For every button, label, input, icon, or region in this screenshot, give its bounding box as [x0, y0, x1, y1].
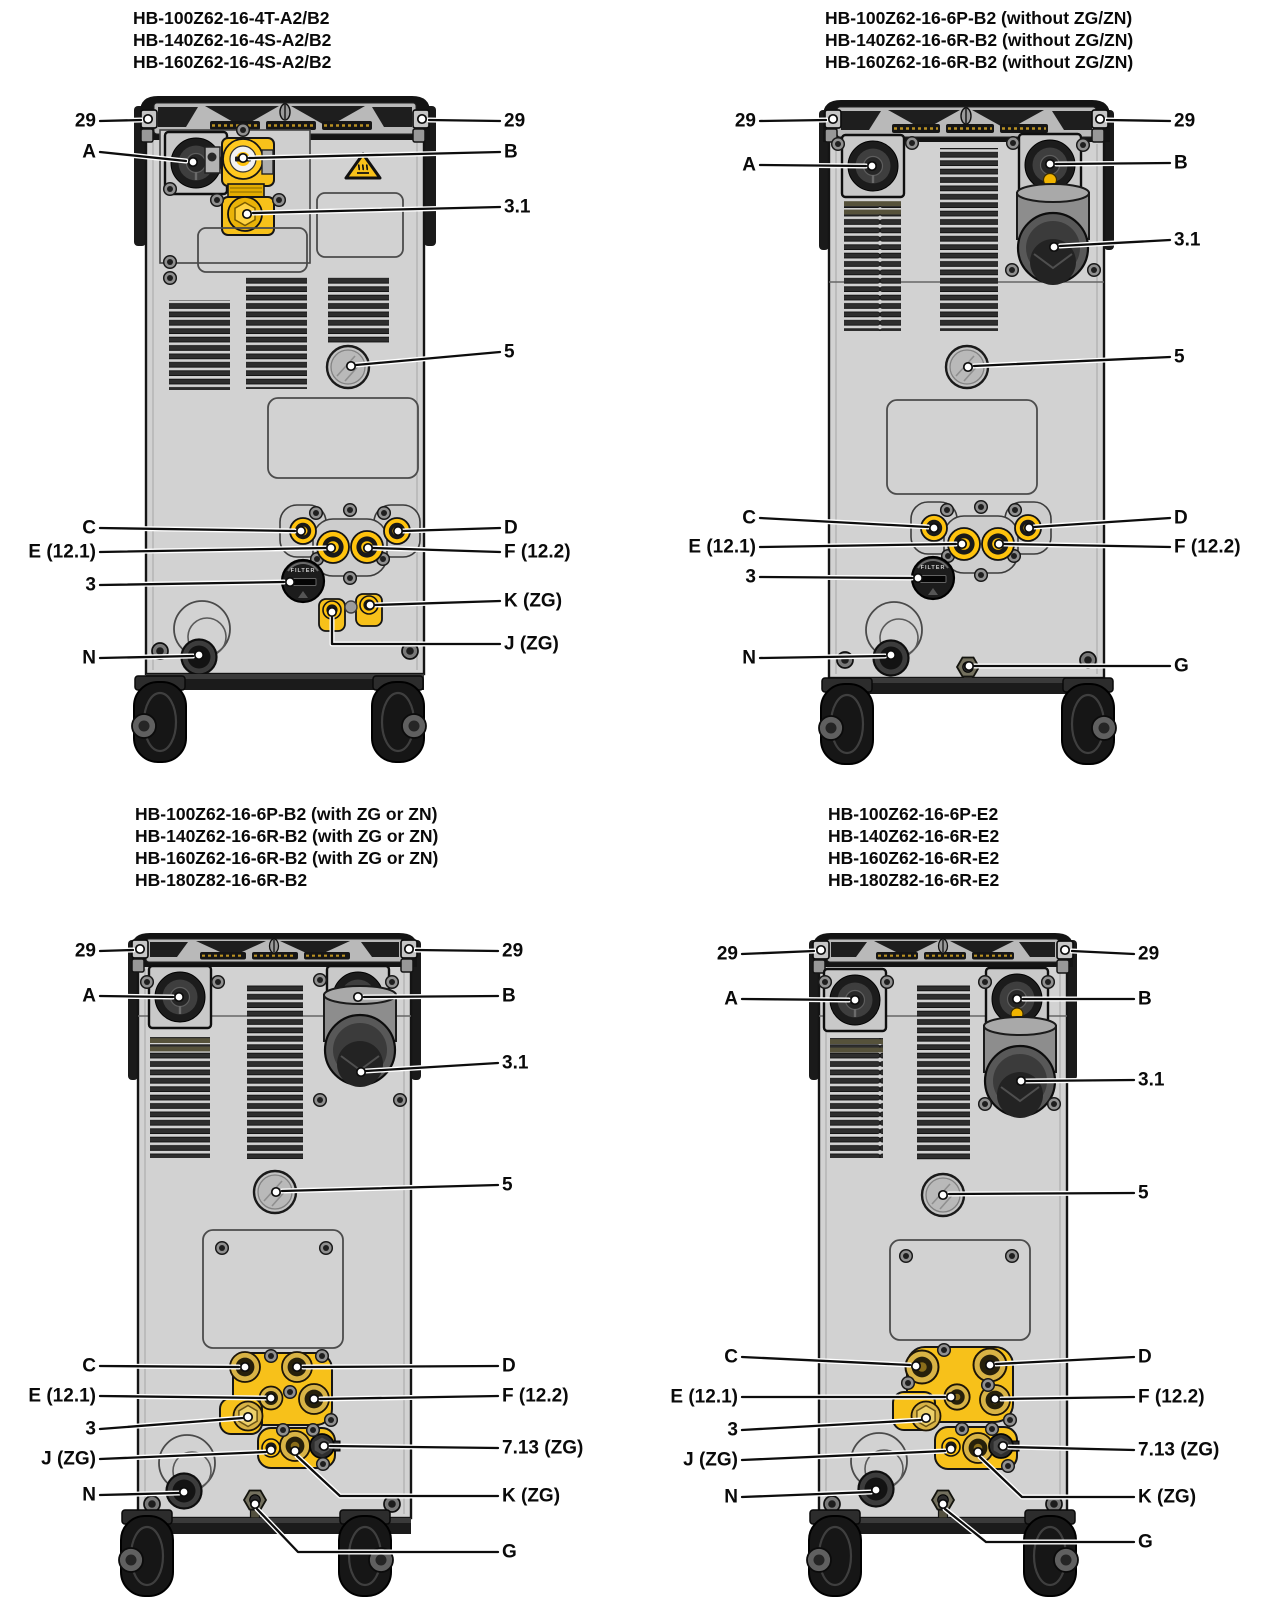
- filter-knob-label: FILTER: [921, 565, 946, 571]
- callout-label-g: G: [1174, 656, 1189, 677]
- callout-label-c: C: [82, 1356, 96, 1377]
- plug: [345, 601, 357, 613]
- screw: [900, 1250, 913, 1263]
- vent-grille-filter: [830, 1048, 883, 1053]
- callout-29-left: [100, 945, 144, 953]
- callout-label-e: E (12.1): [28, 1386, 96, 1407]
- screw: [982, 1379, 995, 1392]
- screw: [1002, 1460, 1015, 1473]
- screw: [141, 976, 154, 989]
- wheel-right: [1062, 678, 1116, 764]
- screw: [325, 1414, 338, 1427]
- wheel-right: [372, 676, 426, 762]
- screw: [1088, 264, 1101, 277]
- figure-panel-top-right: HB-100Z62-16-6P-B2 (without ZG/ZN) HB-14…: [640, 0, 1280, 800]
- machine-rear-view-6p-with-zg: HB-100Z62-16-6P-B2 (with ZG or ZN) HB-14…: [0, 800, 640, 1600]
- callout-label-b: B: [504, 142, 518, 163]
- callout-label-e: E (12.1): [28, 542, 96, 563]
- machine-illustration: FILTER: [132, 96, 436, 762]
- screw: [277, 1424, 290, 1437]
- filling-valve-3-1: [1017, 184, 1089, 285]
- screw: [979, 1098, 992, 1111]
- wheel-left: [819, 678, 873, 764]
- screw: [1007, 137, 1020, 150]
- callout-label-f: F (12.2): [1174, 537, 1241, 558]
- vent-grille: [917, 985, 970, 1160]
- callout-label-k: K (ZG): [502, 1486, 560, 1507]
- vent-grille-filter: [150, 1047, 210, 1052]
- callout-label-3-1: 3.1: [1174, 230, 1201, 251]
- callout-label-j: J (ZG): [504, 634, 559, 655]
- callout-label-29: 29: [75, 111, 96, 132]
- model-title-line: HB-160Z62-16-6R-B2 (without ZG/ZN): [825, 52, 1133, 72]
- screw: [216, 1242, 229, 1255]
- callout-label-n: N: [82, 648, 96, 669]
- screw: [386, 976, 399, 989]
- screw: [1077, 139, 1090, 152]
- screw: [284, 1386, 297, 1399]
- vent-grille-filter: [150, 1038, 210, 1043]
- vent-grille: [247, 985, 303, 1159]
- screw: [273, 194, 286, 207]
- filling-valve-3-1: [984, 1017, 1056, 1118]
- screw: [212, 976, 225, 989]
- callout-label-29: 29: [504, 111, 525, 132]
- wheel-left: [807, 1510, 861, 1596]
- callout-label-5: 5: [1174, 347, 1185, 368]
- model-title-line: HB-100Z62-16-6P-B2 (without ZG/ZN): [825, 8, 1132, 28]
- callout-label-a: A: [82, 986, 96, 1007]
- callout-label-5: 5: [1138, 1183, 1149, 1204]
- screw: [986, 1423, 999, 1436]
- callout-label-f: F (12.2): [502, 1386, 569, 1407]
- model-title-line: HB-140Z62-16-6R-E2: [828, 826, 999, 846]
- callout-label-j: J (ZG): [41, 1449, 96, 1470]
- screw: [314, 1094, 327, 1107]
- callout-label-n: N: [724, 1487, 738, 1508]
- vent-grille: [169, 300, 230, 390]
- figure-panel-top-left: HB-100Z62-16-4T-A2/B2 HB-140Z62-16-4S-A2…: [0, 0, 640, 800]
- screw: [832, 138, 845, 151]
- screw: [265, 1350, 278, 1363]
- callout-label-c: C: [82, 518, 96, 539]
- model-title-line: HB-100Z62-16-6P-B2 (with ZG or ZN): [135, 804, 437, 824]
- screw: [906, 137, 919, 150]
- model-title-line: HB-140Z62-16-6R-B2 (with ZG or ZN): [135, 826, 438, 846]
- screw: [902, 1377, 915, 1390]
- model-title-line: HB-140Z62-16-4S-A2/B2: [133, 30, 332, 50]
- screw: [1006, 1250, 1019, 1263]
- screw: [956, 1423, 969, 1436]
- screw: [394, 1094, 407, 1107]
- screw: [1048, 1098, 1061, 1111]
- callout-label-c: C: [724, 1347, 738, 1368]
- screw: [819, 976, 832, 989]
- vent-grille-filter: [830, 1039, 883, 1044]
- vent-grille: [150, 1037, 210, 1158]
- callout-label-3-1: 3.1: [1138, 1070, 1165, 1091]
- machine-rear-view-6p-without-zg: HB-100Z62-16-6P-B2 (without ZG/ZN) HB-14…: [640, 0, 1280, 800]
- screw: [881, 976, 894, 989]
- model-title-line: HB-140Z62-16-6R-B2 (without ZG/ZN): [825, 30, 1133, 50]
- screw: [164, 256, 177, 269]
- callout-label-g: G: [1138, 1532, 1153, 1553]
- callout-label-c: C: [742, 508, 756, 529]
- fitting-k-zg: [356, 594, 382, 626]
- vent-grille: [940, 148, 998, 331]
- model-title-line: HB-160Z62-16-4S-A2/B2: [133, 52, 332, 72]
- screw: [1006, 264, 1019, 277]
- callout-label-f: F (12.2): [504, 542, 571, 563]
- screw: [307, 1424, 320, 1437]
- callout-label-3-1: 3.1: [504, 197, 531, 218]
- callout-29-left: [100, 115, 152, 123]
- vent-grille: [844, 200, 901, 331]
- callout-label-d: D: [1138, 1347, 1152, 1368]
- callout-label-29: 29: [1138, 944, 1159, 965]
- screw: [938, 1344, 951, 1357]
- callout-label-d: D: [504, 518, 518, 539]
- callout-label-29: 29: [717, 944, 738, 965]
- callout-label-29: 29: [735, 111, 756, 132]
- vent-grille: [328, 276, 389, 344]
- vent-grille: [830, 1038, 883, 1158]
- screw: [314, 974, 327, 987]
- vent-grille-filter: [844, 210, 901, 215]
- figure-panel-bottom-right: HB-100Z62-16-6P-E2 HB-140Z62-16-6R-E2 HB…: [640, 800, 1280, 1600]
- callout-label-e: E (12.1): [670, 1387, 738, 1408]
- model-title-line: HB-160Z62-16-6R-B2 (with ZG or ZN): [135, 848, 438, 868]
- callout-label-7-13: 7.13 (ZG): [1138, 1440, 1219, 1461]
- screw: [1004, 1414, 1017, 1427]
- callout-label-5: 5: [504, 342, 515, 363]
- top-cap: [132, 933, 417, 967]
- screw: [211, 194, 224, 207]
- callout-label-d: D: [502, 1356, 516, 1377]
- model-title-line: HB-160Z62-16-6R-E2: [828, 848, 999, 868]
- callout-label-3: 3: [85, 575, 96, 596]
- model-title-line: HB-180Z82-16-6R-B2: [135, 870, 307, 890]
- callout-label-k: K (ZG): [1138, 1487, 1196, 1508]
- model-title-line: HB-100Z62-16-4T-A2/B2: [133, 8, 330, 28]
- wheel-left: [119, 1510, 173, 1596]
- screw: [1042, 976, 1055, 989]
- callout-label-3: 3: [727, 1420, 738, 1441]
- filter-knob-label: FILTER: [291, 568, 316, 574]
- callout-label-a: A: [82, 142, 96, 163]
- callout-label-a: A: [724, 989, 738, 1010]
- callout-label-7-13: 7.13 (ZG): [502, 1438, 583, 1459]
- callout-label-29: 29: [75, 941, 96, 962]
- machine-rear-view-6p-e2: HB-100Z62-16-6P-E2 HB-140Z62-16-6R-E2 HB…: [640, 800, 1280, 1600]
- callout-label-j: J (ZG): [683, 1450, 738, 1471]
- screw: [979, 976, 992, 989]
- screw: [316, 1350, 329, 1363]
- screw: [164, 183, 177, 196]
- callout-label-a: A: [742, 155, 756, 176]
- callout-label-d: D: [1174, 508, 1188, 529]
- screw: [320, 1242, 333, 1255]
- model-title-line: HB-180Z82-16-6R-E2: [828, 870, 999, 890]
- callout-label-3: 3: [745, 567, 756, 588]
- callout-label-b: B: [502, 986, 516, 1007]
- callout-label-29: 29: [502, 941, 523, 962]
- callout-label-b: B: [1174, 153, 1188, 174]
- callout-label-5: 5: [502, 1175, 513, 1196]
- screw: [237, 124, 250, 137]
- callout-label-29: 29: [1174, 111, 1195, 132]
- callout-label-n: N: [82, 1485, 96, 1506]
- vent-grille: [246, 276, 307, 389]
- vent-grille-filter: [844, 201, 901, 206]
- callout-label-g: G: [502, 1542, 517, 1563]
- screw: [164, 272, 177, 285]
- callout-label-n: N: [742, 648, 756, 669]
- callout-label-b: B: [1138, 989, 1152, 1010]
- machine-rear-view-4t: HB-100Z62-16-4T-A2/B2 HB-140Z62-16-4S-A2…: [0, 0, 640, 800]
- callout-label-3: 3: [85, 1419, 96, 1440]
- wheel-left: [132, 676, 186, 762]
- callout-label-f: F (12.2): [1138, 1387, 1205, 1408]
- screw: [317, 1458, 330, 1471]
- top-cap: [813, 933, 1073, 967]
- wheel-right: [1024, 1510, 1078, 1596]
- callout-label-e: E (12.1): [688, 537, 756, 558]
- manual-page: HB-100Z62-16-4T-A2/B2 HB-140Z62-16-4S-A2…: [0, 0, 1280, 1600]
- figure-panel-bottom-left: HB-100Z62-16-6P-B2 (with ZG or ZN) HB-14…: [0, 800, 640, 1600]
- model-title-line: HB-100Z62-16-6P-E2: [828, 804, 998, 824]
- callout-label-k: K (ZG): [504, 591, 562, 612]
- callout-label-3-1: 3.1: [502, 1053, 529, 1074]
